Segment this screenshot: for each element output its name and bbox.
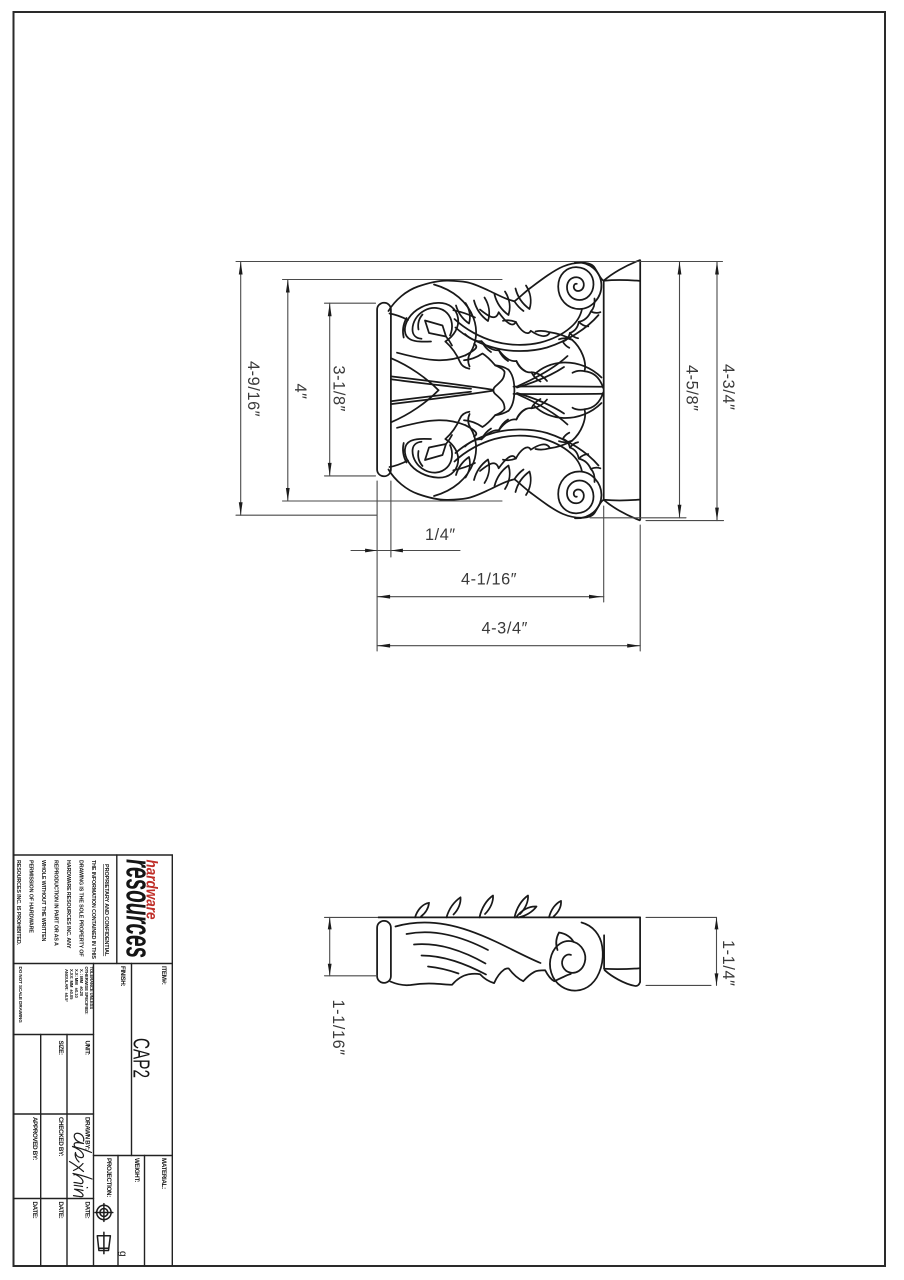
svg-text:DATE:: DATE: [57, 1202, 64, 1219]
svg-text:UNIT:: UNIT: [84, 1041, 91, 1056]
svg-text:DO NOT SCALE DRAWING: DO NOT SCALE DRAWING [18, 967, 23, 1024]
svg-text:PERMISSION OF HARDWARE: PERMISSION OF HARDWARE [28, 860, 34, 933]
svg-text:1-1/16″: 1-1/16″ [329, 1000, 347, 1056]
svg-text:WHOLE WITHOUT THE WRITTEN: WHOLE WITHOUT THE WRITTEN [40, 860, 46, 942]
svg-text:HARDWARE RESOURCES INC. ANY: HARDWARE RESOURCES INC. ANY [65, 860, 71, 949]
svg-text:ANGULAR: ±0.5°: ANGULAR: ±0.5° [64, 969, 69, 1002]
svg-text:resources: resources [119, 859, 160, 958]
svg-text:PROPRIETARY AND CONFIDENTIAL: PROPRIETARY AND CONFIDENTIAL [103, 864, 109, 957]
svg-text:4-9/16″: 4-9/16″ [244, 361, 262, 417]
svg-text:DRAWN BY:: DRAWN BY: [84, 1117, 91, 1150]
svg-text:CHECKED BY:: CHECKED BY: [57, 1117, 64, 1156]
svg-text:ITEM#:: ITEM#: [160, 966, 167, 985]
svg-text:4-3/4″: 4-3/4″ [482, 620, 528, 638]
svg-text:4″: 4″ [291, 384, 309, 400]
svg-text:1/4″: 1/4″ [425, 526, 456, 544]
svg-text:FINISH:: FINISH: [119, 966, 126, 986]
svg-text:1-1/4″: 1-1/4″ [719, 940, 737, 986]
svg-text:WEIGHT:: WEIGHT: [133, 1158, 140, 1182]
svg-text:APPROVED BY:: APPROVED BY: [31, 1117, 38, 1160]
svg-text:3-1/8″: 3-1/8″ [330, 366, 348, 412]
svg-text:SIZE:: SIZE: [57, 1041, 64, 1056]
svg-text:g: g [117, 1251, 128, 1257]
svg-text:DATE:: DATE: [84, 1202, 91, 1219]
svg-text:CAP2: CAP2 [129, 1038, 155, 1078]
svg-text:DATE:: DATE: [31, 1202, 38, 1219]
svg-text:THE INFORMATION CONTAINED IN T: THE INFORMATION CONTAINED IN THIS [90, 860, 96, 959]
svg-text:RESOURCES INC. IS PROHIBITED.: RESOURCES INC. IS PROHIBITED. [15, 860, 21, 946]
svg-text:PROJECTION:: PROJECTION: [105, 1158, 112, 1197]
svg-text:MATERIAL:: MATERIAL: [160, 1158, 167, 1189]
svg-text:DRAWING IS THE SOLE PROPERTY O: DRAWING IS THE SOLE PROPERTY OF [78, 860, 84, 957]
svg-text:4-3/4″: 4-3/4″ [719, 364, 737, 410]
svg-text:REPRODUCTION IN PART OR AS A: REPRODUCTION IN PART OR AS A [53, 860, 59, 946]
svg-text:4-5/8″: 4-5/8″ [683, 365, 701, 411]
svg-text:4-1/16″: 4-1/16″ [461, 571, 517, 589]
